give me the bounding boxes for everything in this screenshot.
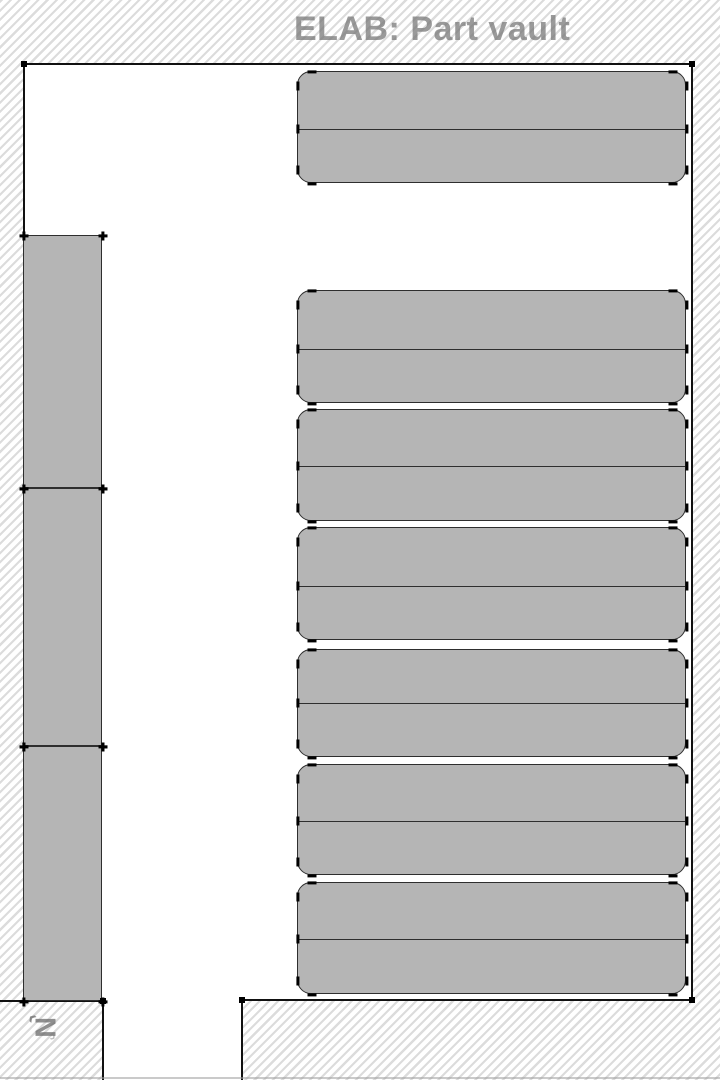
shelf-divider — [298, 939, 685, 940]
vertex-tick — [308, 993, 317, 996]
vertex-tick — [685, 386, 688, 395]
vertex-tick — [685, 125, 688, 134]
wall-rack — [23, 746, 102, 1001]
vertex-tick — [669, 520, 678, 523]
vertex-tick — [685, 977, 688, 986]
vertex-tick — [308, 526, 317, 529]
vertex-tick — [669, 756, 678, 759]
vertex-tick — [669, 763, 678, 766]
vertex-tick — [308, 763, 317, 766]
vertex-tick — [308, 648, 317, 651]
wall-segment — [691, 63, 693, 1001]
wall-segment — [23, 63, 25, 237]
vertex-tick — [101, 232, 104, 241]
vertex-tick — [685, 582, 688, 591]
vertex-tick — [296, 893, 299, 902]
shelf-rack — [297, 882, 686, 994]
vertex-tick — [685, 623, 688, 632]
vertex-tick — [296, 504, 299, 513]
wall-corner-node — [689, 997, 695, 1003]
shelf-rack — [297, 409, 686, 521]
shelf-rack — [297, 290, 686, 403]
vertex-tick — [308, 874, 317, 877]
vertex-tick — [296, 623, 299, 632]
vertex-tick — [296, 166, 299, 175]
vertex-tick — [296, 301, 299, 310]
vertex-tick — [101, 485, 104, 494]
vertex-tick — [669, 874, 678, 877]
vertex-tick — [308, 756, 317, 759]
floorplan-canvas: ELAB: Part vault ‹ N › — [0, 0, 720, 1080]
vertex-tick — [685, 660, 688, 669]
shelf-rack — [297, 71, 686, 183]
shelf-divider — [298, 821, 685, 822]
vertex-tick — [308, 408, 317, 411]
vertex-tick — [685, 301, 688, 310]
vertex-tick — [685, 858, 688, 867]
wall-rack — [23, 488, 102, 746]
vertex-tick — [685, 817, 688, 826]
vertex-tick — [669, 402, 678, 405]
vertex-tick — [296, 858, 299, 867]
vertex-tick — [685, 775, 688, 784]
vertex-tick — [296, 386, 299, 395]
wall-segment — [241, 999, 243, 1080]
vertex-tick — [685, 538, 688, 547]
vertex-tick — [296, 977, 299, 986]
vertex-tick — [296, 125, 299, 134]
vertex-tick — [669, 70, 678, 73]
vertex-tick — [685, 935, 688, 944]
vertex-tick — [669, 408, 678, 411]
vertex-tick — [296, 817, 299, 826]
vertex-tick — [101, 743, 104, 752]
vertex-tick — [22, 232, 25, 241]
shelf-divider — [298, 129, 685, 130]
shelf-rack — [297, 649, 686, 757]
wall-segment — [102, 1000, 104, 1080]
vertex-tick — [22, 485, 25, 494]
vertex-tick — [669, 526, 678, 529]
shelf-divider — [298, 586, 685, 587]
vertex-tick — [669, 289, 678, 292]
vertex-tick — [685, 462, 688, 471]
vertex-tick — [296, 775, 299, 784]
shelf-rack — [297, 527, 686, 640]
vertex-tick — [669, 648, 678, 651]
vertex-tick — [685, 699, 688, 708]
vertex-tick — [308, 881, 317, 884]
vertex-tick — [308, 182, 317, 185]
wall-corner-node — [239, 997, 245, 1003]
wall-corner-node — [21, 61, 27, 67]
shelf-divider — [298, 466, 685, 467]
vertex-tick — [669, 639, 678, 642]
vertex-tick — [296, 935, 299, 944]
vertex-tick — [685, 166, 688, 175]
vertex-tick — [685, 420, 688, 429]
vertex-tick — [296, 582, 299, 591]
vertex-tick — [685, 504, 688, 513]
wall-segment — [241, 999, 693, 1001]
vertex-tick — [308, 70, 317, 73]
page-title: ELAB: Part vault — [294, 10, 570, 49]
vertex-tick — [296, 699, 299, 708]
vertex-tick — [308, 289, 317, 292]
canvas-bottom-edge — [0, 1077, 720, 1079]
wall-segment — [23, 63, 693, 65]
vertex-tick — [296, 660, 299, 669]
wall-rack — [23, 235, 102, 488]
vertex-tick — [22, 998, 25, 1007]
vertex-tick — [308, 639, 317, 642]
vertex-tick — [22, 743, 25, 752]
vertex-tick — [685, 82, 688, 91]
vertex-tick — [308, 402, 317, 405]
vertex-tick — [685, 893, 688, 902]
vertex-tick — [685, 345, 688, 354]
vertex-tick — [296, 740, 299, 749]
vertex-tick — [296, 462, 299, 471]
vertex-tick — [669, 993, 678, 996]
north-arrow-icon: ‹ N › — [21, 1004, 66, 1049]
vertex-tick — [669, 881, 678, 884]
wall-corner-node — [100, 998, 106, 1004]
vertex-tick — [296, 420, 299, 429]
shelf-rack — [297, 764, 686, 875]
vertex-tick — [296, 82, 299, 91]
shelf-divider — [298, 703, 685, 704]
shelf-divider — [298, 349, 685, 350]
vertex-tick — [296, 538, 299, 547]
vertex-tick — [308, 520, 317, 523]
vertex-tick — [296, 345, 299, 354]
vertex-tick — [685, 740, 688, 749]
wall-corner-node — [689, 61, 695, 67]
room-interior — [103, 1000, 242, 1080]
vertex-tick — [669, 182, 678, 185]
